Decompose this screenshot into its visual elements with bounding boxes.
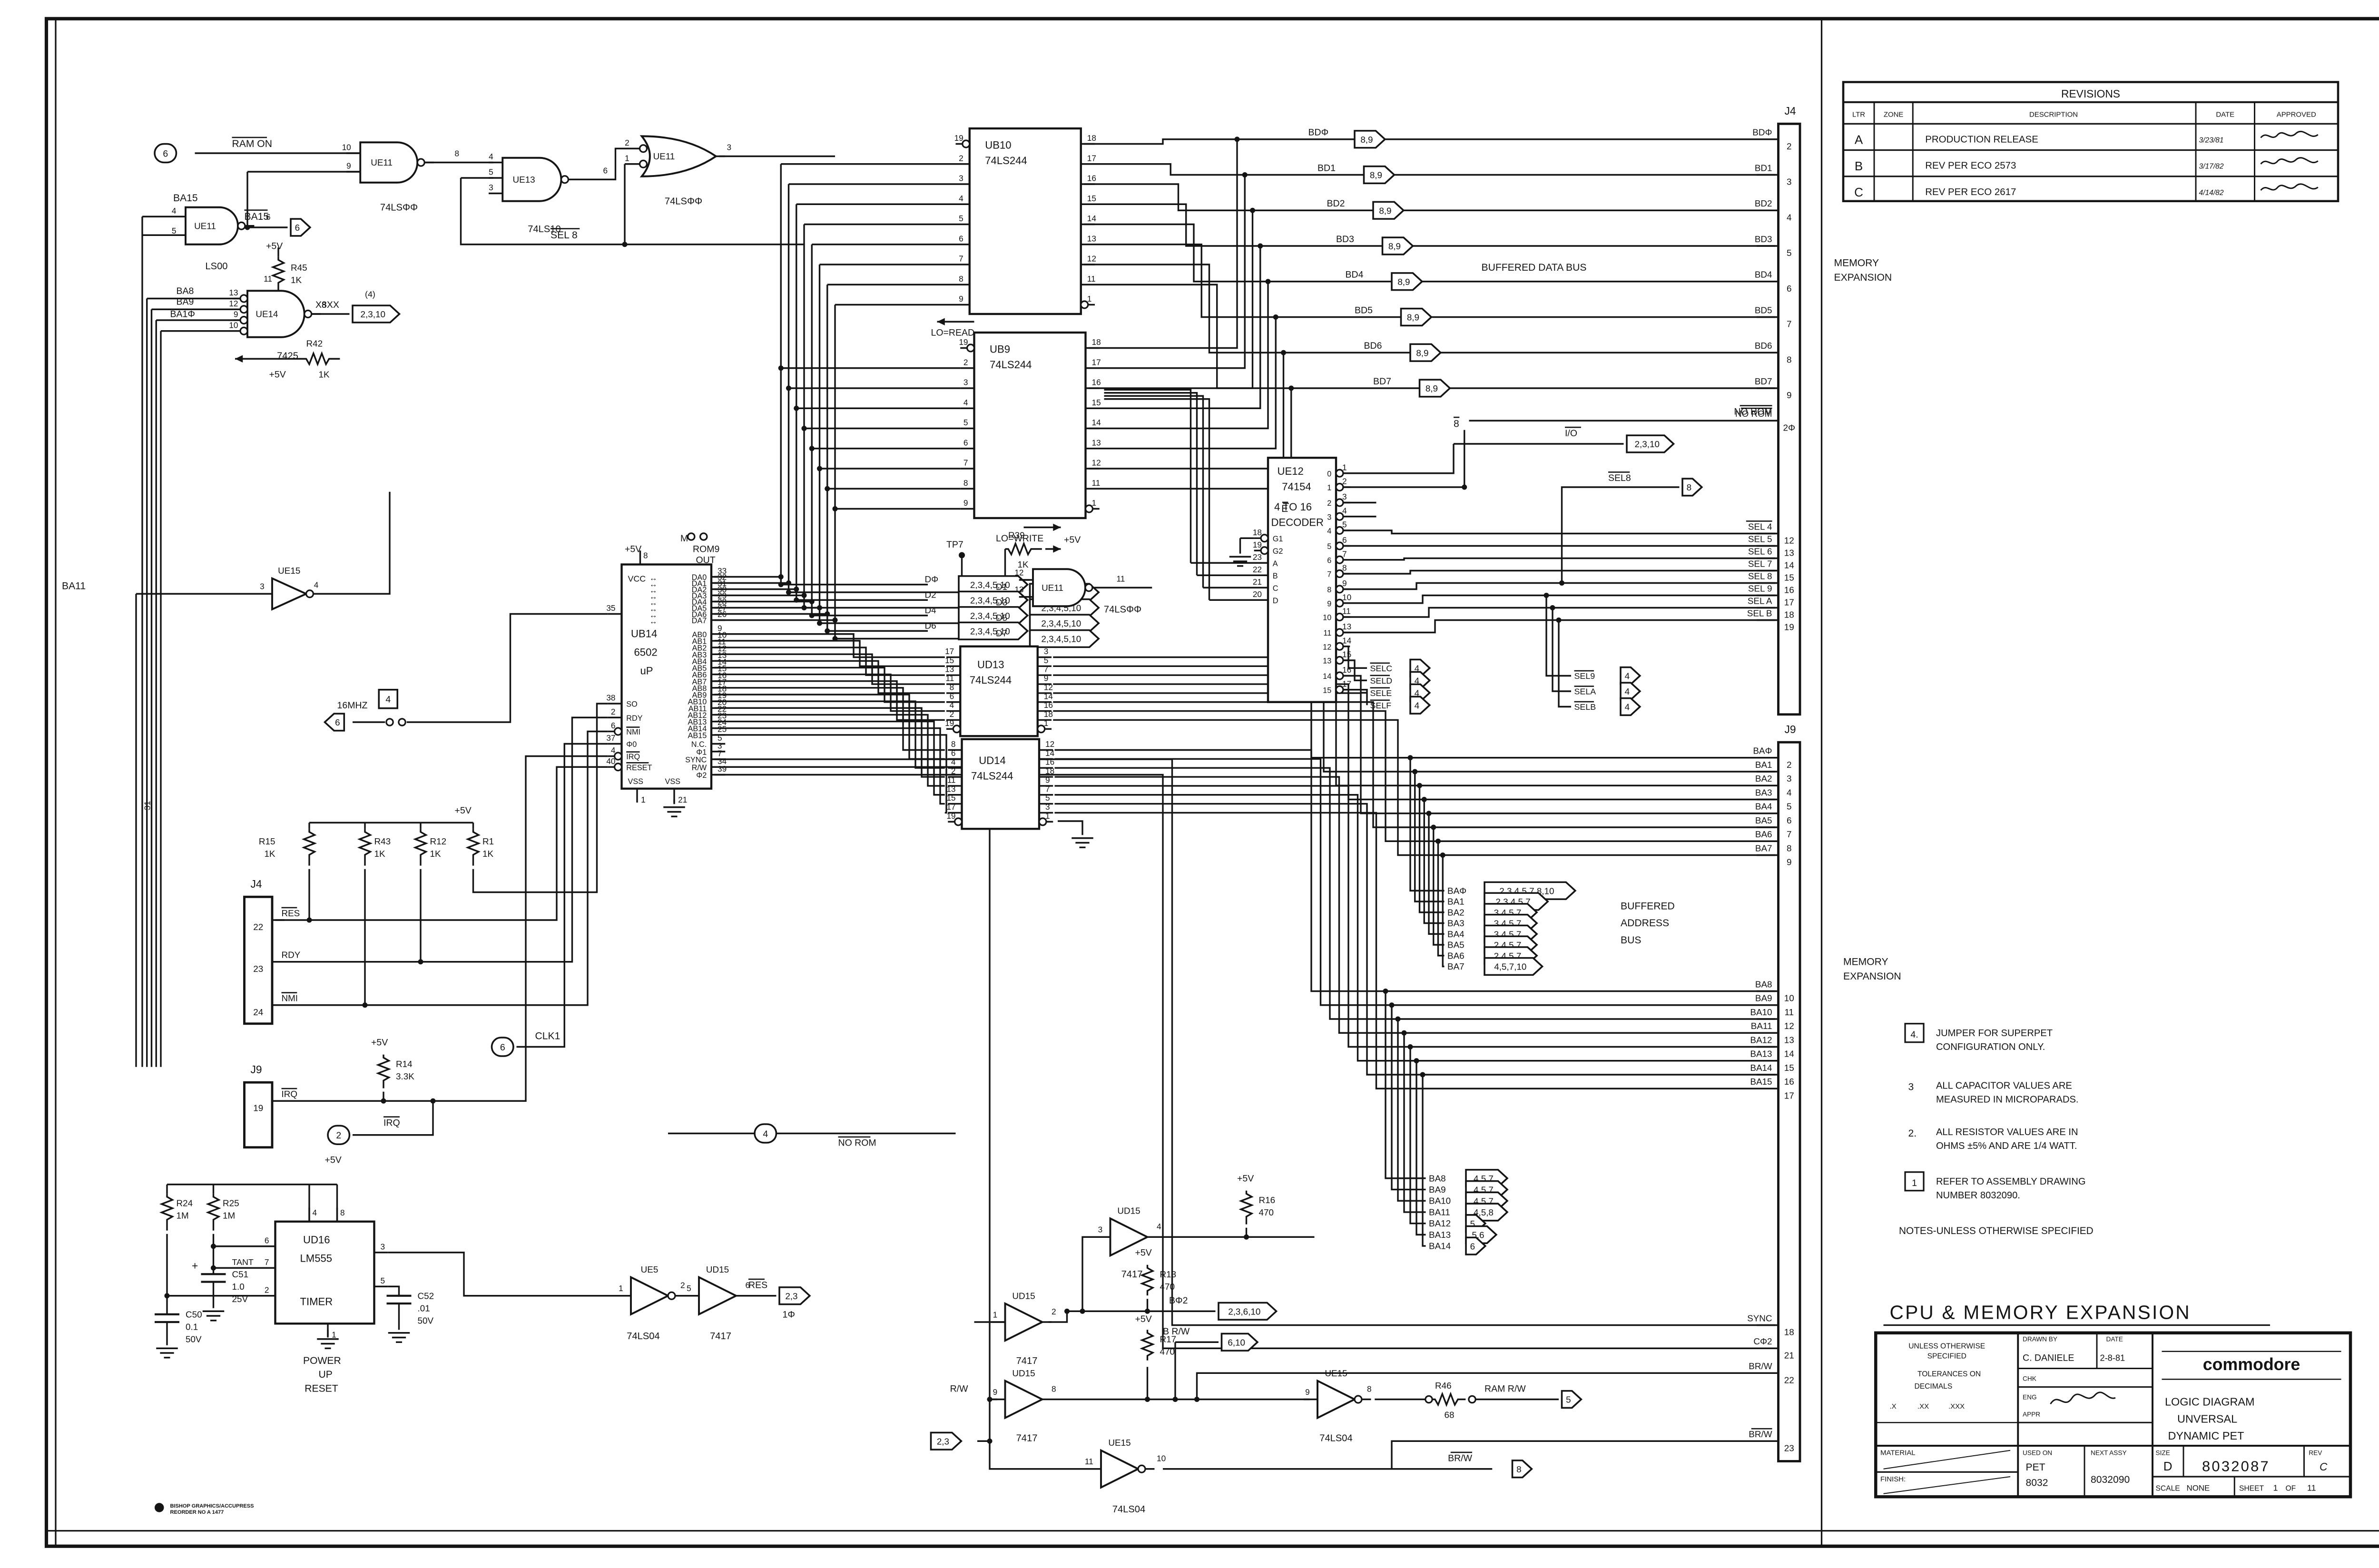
- svg-text:14: 14: [1045, 748, 1055, 758]
- svg-text:3: 3: [727, 143, 732, 152]
- svg-text:X8XX: X8XX: [315, 300, 339, 310]
- svg-text:8,9: 8,9: [1370, 170, 1382, 180]
- svg-text:UE15: UE15: [278, 566, 300, 576]
- svg-text:UE11: UE11: [1042, 583, 1063, 593]
- svg-text:+5V: +5V: [625, 544, 641, 555]
- svg-text:3: 3: [1342, 492, 1347, 501]
- svg-text:Φ2: Φ2: [696, 771, 707, 780]
- svg-text:16: 16: [1044, 700, 1053, 710]
- svg-text:UD15: UD15: [706, 1264, 729, 1274]
- svg-text:UE11: UE11: [194, 221, 216, 231]
- svg-text:B: B: [1855, 159, 1863, 173]
- svg-text:14: 14: [1784, 560, 1794, 570]
- svg-text:14: 14: [1784, 1049, 1794, 1059]
- svg-text:DECIMALS: DECIMALS: [1915, 1382, 1953, 1391]
- svg-text:17: 17: [1784, 1090, 1794, 1100]
- svg-text:2: 2: [1787, 141, 1791, 151]
- svg-text:C: C: [2320, 1460, 2328, 1473]
- svg-text:3: 3: [1045, 802, 1050, 812]
- svg-text:2-8-81: 2-8-81: [2100, 1353, 2125, 1362]
- svg-text:NMI: NMI: [626, 728, 640, 736]
- svg-text:BA13: BA13: [1429, 1230, 1451, 1240]
- svg-text:3: 3: [1787, 177, 1791, 187]
- svg-text:2: 2: [336, 1130, 341, 1141]
- gate-ue15: UE1574LS0498: [1304, 1368, 1372, 1444]
- svg-text:1: 1: [332, 1330, 336, 1340]
- svg-text:R15: R15: [259, 836, 275, 846]
- svg-text:LOGIC DIAGRAM: LOGIC DIAGRAM: [2165, 1396, 2254, 1408]
- svg-text:25V: 25V: [232, 1294, 248, 1304]
- svg-text:DRAWN BY: DRAWN BY: [2023, 1336, 2057, 1343]
- svg-text:15: 15: [1784, 573, 1794, 583]
- svg-text:13: 13: [1014, 585, 1023, 594]
- svg-text:5: 5: [1045, 793, 1050, 803]
- svg-text:21: 21: [1784, 1350, 1794, 1360]
- svg-text:10: 10: [1342, 592, 1351, 602]
- svg-text:UE13: UE13: [513, 175, 535, 185]
- svg-text:BA10: BA10: [1429, 1196, 1451, 1206]
- svg-text:BA15: BA15: [1750, 1077, 1772, 1087]
- svg-text:7: 7: [1787, 829, 1791, 839]
- svg-text:74154: 74154: [1282, 481, 1311, 493]
- svg-text:3/17/82: 3/17/82: [2199, 163, 2224, 171]
- svg-text:10: 10: [342, 143, 351, 152]
- svg-text:11: 11: [1092, 478, 1101, 488]
- wires: [136, 148, 1775, 1469]
- svg-text:UD14: UD14: [979, 755, 1006, 766]
- svg-text:6: 6: [963, 438, 968, 447]
- svg-text:.01: .01: [418, 1303, 430, 1313]
- svg-text:LTR: LTR: [1852, 111, 1865, 119]
- svg-text:1K: 1K: [319, 369, 330, 379]
- svg-text:2: 2: [963, 357, 968, 367]
- svg-text:21: 21: [1253, 577, 1262, 587]
- svg-text:B: B: [1273, 572, 1278, 580]
- svg-text:13: 13: [229, 288, 238, 297]
- svg-text:NO ROM: NO ROM: [1734, 406, 1772, 417]
- svg-text:13: 13: [1087, 234, 1096, 243]
- svg-text:14: 14: [1044, 691, 1053, 701]
- svg-text:SELC: SELC: [1370, 664, 1393, 673]
- svg-text:6: 6: [335, 717, 340, 727]
- svg-text:2,3: 2,3: [785, 1291, 797, 1301]
- svg-text:NOTES-UNLESS OTHERWISE SPECIFI: NOTES-UNLESS OTHERWISE SPECIFIED: [1899, 1225, 2094, 1236]
- schematic-page: 31BISHOP GRAPHICS/ACCUPRESSREORDER NO A …: [0, 0, 2379, 1568]
- svg-text:4: 4: [1787, 212, 1791, 222]
- svg-text:1M: 1M: [223, 1210, 235, 1220]
- svg-text:SEL 4: SEL 4: [1748, 521, 1772, 531]
- svg-text:1: 1: [625, 153, 629, 163]
- svg-text:UE5: UE5: [641, 1264, 659, 1274]
- svg-text:8032090: 8032090: [2091, 1474, 2130, 1485]
- svg-text:UB10: UB10: [985, 139, 1011, 151]
- chip-ud13: UD1374LS244171513118642193579121416181: [945, 647, 1053, 736]
- svg-text:5: 5: [963, 418, 968, 427]
- svg-text:BA5: BA5: [1755, 815, 1772, 825]
- svg-text:TP7: TP7: [946, 539, 963, 550]
- svg-text:D1: D1: [996, 582, 1007, 592]
- svg-text:18: 18: [1092, 337, 1101, 347]
- svg-text:18: 18: [1784, 1327, 1794, 1337]
- svg-text:18: 18: [1253, 528, 1262, 537]
- svg-text:ZONE: ZONE: [1884, 111, 1904, 119]
- svg-text:22: 22: [253, 922, 263, 932]
- svg-text:REV PER ECO 2573: REV PER ECO 2573: [1925, 160, 2016, 171]
- gate-ud15: UD15741798: [991, 1368, 1056, 1444]
- svg-text:BR/W: BR/W: [1749, 1361, 1772, 1371]
- svg-text:BD2: BD2: [1755, 198, 1772, 208]
- svg-text:13: 13: [1092, 438, 1101, 447]
- svg-text:1K: 1K: [374, 849, 385, 859]
- svg-text:NEXT ASSY: NEXT ASSY: [2091, 1450, 2127, 1457]
- svg-text:5: 5: [959, 214, 963, 223]
- svg-text:1: 1: [1092, 498, 1097, 508]
- svg-text:16: 16: [1342, 665, 1351, 675]
- svg-text:2: 2: [265, 1285, 269, 1294]
- svg-text:(4): (4): [365, 289, 375, 299]
- svg-text:ADDRESS: ADDRESS: [1621, 918, 1669, 929]
- svg-text:BA10: BA10: [1750, 1007, 1772, 1017]
- svg-text:BA11: BA11: [1751, 1021, 1772, 1031]
- svg-text:SYNC: SYNC: [1747, 1313, 1772, 1323]
- svg-text:19: 19: [253, 1103, 263, 1113]
- svg-text:5: 5: [381, 1276, 385, 1285]
- svg-text:6: 6: [163, 148, 168, 159]
- svg-text:16: 16: [1045, 757, 1054, 767]
- svg-text:BAΦ: BAΦ: [1447, 886, 1466, 896]
- svg-text:15: 15: [945, 656, 954, 665]
- svg-text:4: 4: [489, 152, 493, 161]
- svg-text:1: 1: [993, 1310, 998, 1319]
- svg-text:BA9: BA9: [1429, 1185, 1446, 1195]
- svg-text:5: 5: [172, 226, 177, 235]
- svg-text:BA13: BA13: [1750, 1049, 1772, 1059]
- svg-text:DYNAMIC PET: DYNAMIC PET: [2168, 1430, 2244, 1442]
- svg-text:1: 1: [2273, 1483, 2278, 1492]
- svg-text:UD15: UD15: [1117, 1206, 1140, 1216]
- connector-j9-l: J9IRQ19: [245, 1063, 298, 1147]
- svg-text:26: 26: [718, 609, 727, 619]
- svg-text:23: 23: [1784, 1443, 1794, 1453]
- svg-text:+5V: +5V: [455, 805, 472, 816]
- svg-text:DA7: DA7: [692, 617, 707, 625]
- svg-text:R25: R25: [223, 1198, 239, 1208]
- svg-text:6: 6: [951, 748, 956, 758]
- svg-text:+5V: +5V: [266, 241, 283, 252]
- svg-text:11: 11: [1784, 1007, 1794, 1017]
- svg-text:commodore: commodore: [2203, 1355, 2300, 1374]
- svg-text:SEL 9: SEL 9: [1748, 583, 1772, 593]
- svg-text:TOLERANCES ON: TOLERANCES ON: [1917, 1370, 1981, 1378]
- svg-text:4: 4: [313, 1208, 317, 1217]
- svg-text:74LSΦΦ: 74LSΦΦ: [665, 196, 702, 206]
- svg-text:1: 1: [1342, 462, 1347, 472]
- svg-text:74LS244: 74LS244: [971, 770, 1013, 782]
- svg-text:BD7: BD7: [1755, 376, 1772, 386]
- svg-text:R24: R24: [177, 1198, 193, 1208]
- svg-text:BA15: BA15: [245, 211, 269, 222]
- svg-text:ALL RESISTOR VALUES ARE IN: ALL RESISTOR VALUES ARE IN: [1936, 1127, 2078, 1137]
- svg-text:7: 7: [265, 1257, 269, 1267]
- svg-text:4: 4: [1415, 700, 1419, 710]
- svg-text:J9: J9: [251, 1063, 262, 1076]
- chip-ub9: UB974LS244192345678918171615141312111: [959, 333, 1101, 518]
- svg-text:39: 39: [718, 764, 727, 774]
- svg-text:BD4: BD4: [1755, 270, 1772, 280]
- svg-text:6: 6: [1470, 1241, 1475, 1251]
- svg-text:12: 12: [229, 299, 238, 308]
- svg-text:15: 15: [1092, 398, 1101, 407]
- notes: 4.JUMPER FOR SUPERPETCONFIGURATION ONLY.…: [1899, 1024, 2094, 1236]
- svg-text:35: 35: [606, 603, 615, 613]
- svg-text:17: 17: [1784, 598, 1794, 608]
- svg-text:9: 9: [1045, 775, 1050, 784]
- svg-text:RES: RES: [282, 908, 300, 918]
- svg-text:↔: ↔: [649, 617, 657, 626]
- svg-text:2,3,4,5,10: 2,3,4,5,10: [1041, 618, 1081, 628]
- svg-text:12: 12: [1784, 536, 1794, 546]
- svg-text:+5V: +5V: [1135, 1314, 1152, 1324]
- svg-text:UD15: UD15: [1012, 1291, 1035, 1301]
- svg-text:2,3,10: 2,3,10: [1635, 439, 1660, 449]
- svg-text:SEL 8: SEL 8: [1748, 571, 1772, 581]
- svg-text:SELD: SELD: [1370, 676, 1393, 686]
- svg-text:R14: R14: [396, 1059, 413, 1069]
- svg-text:6: 6: [1787, 284, 1791, 294]
- chip-ud16: UD16LM555TIMER67248351: [261, 1208, 388, 1340]
- svg-text:1K: 1K: [482, 849, 493, 859]
- svg-text:15: 15: [1784, 1063, 1794, 1073]
- svg-text:19: 19: [1784, 622, 1794, 632]
- svg-text:5: 5: [1044, 656, 1049, 665]
- svg-text:4/14/82: 4/14/82: [2199, 189, 2224, 197]
- svg-text:6: 6: [611, 721, 616, 730]
- svg-text:11: 11: [1323, 629, 1331, 637]
- svg-text:5: 5: [1566, 1395, 1571, 1405]
- svg-text:BA9: BA9: [177, 297, 194, 307]
- svg-text:BA4: BA4: [1755, 802, 1772, 812]
- svg-text:BD3: BD3: [1755, 234, 1772, 244]
- svg-text:+5V: +5V: [269, 369, 286, 380]
- svg-text:1: 1: [1327, 484, 1331, 492]
- svg-text:14: 14: [1323, 672, 1331, 681]
- svg-text:12: 12: [1092, 458, 1101, 468]
- svg-text:SEL 7: SEL 7: [1748, 559, 1772, 568]
- svg-text:DECODER: DECODER: [1271, 516, 1324, 528]
- svg-text:13: 13: [945, 665, 954, 674]
- svg-text:5: 5: [1327, 542, 1331, 551]
- svg-text:9: 9: [1787, 857, 1791, 867]
- svg-text:8: 8: [1367, 1384, 1372, 1393]
- svg-text:BA12: BA12: [1429, 1218, 1451, 1228]
- svg-text:ALL CAPACITOR VALUES ARE: ALL CAPACITOR VALUES ARE: [1936, 1080, 2072, 1091]
- svg-text:7425: 7425: [277, 351, 298, 361]
- svg-text:14: 14: [1342, 636, 1352, 645]
- svg-text:LS00: LS00: [205, 261, 227, 272]
- svg-text:3: 3: [963, 378, 968, 387]
- svg-text:1K: 1K: [264, 849, 275, 859]
- svg-text:2: 2: [950, 709, 954, 719]
- svg-text:19: 19: [959, 337, 968, 347]
- svg-text:12: 12: [1323, 643, 1331, 651]
- gate-ue11: UE1174LSΦΦ213: [625, 136, 731, 206]
- svg-text:4: 4: [385, 695, 391, 705]
- svg-text:VSS: VSS: [665, 777, 681, 786]
- svg-text:R1: R1: [482, 836, 494, 846]
- svg-text:5: 5: [687, 1284, 691, 1293]
- svg-text:24: 24: [253, 1007, 263, 1017]
- svg-text:FINISH:: FINISH:: [1880, 1475, 1906, 1483]
- svg-text:4: 4: [959, 194, 963, 203]
- svg-text:12: 12: [1045, 739, 1054, 749]
- svg-text:ENG: ENG: [2023, 1394, 2037, 1401]
- svg-text:OUT: OUT: [696, 555, 716, 565]
- svg-text:IRQ: IRQ: [626, 753, 640, 761]
- svg-text:9: 9: [959, 294, 963, 304]
- svg-text:11: 11: [1085, 1457, 1093, 1466]
- svg-text:1: 1: [1045, 811, 1050, 821]
- svg-text:4: 4: [1327, 527, 1331, 536]
- svg-text:18: 18: [1087, 133, 1096, 143]
- svg-text:9: 9: [993, 1387, 998, 1397]
- svg-text:7417: 7417: [1121, 1269, 1143, 1280]
- svg-text:3: 3: [1908, 1082, 1914, 1093]
- svg-text:SELB: SELB: [1574, 702, 1596, 712]
- svg-text:+5V: +5V: [1064, 535, 1081, 545]
- svg-text:C: C: [1273, 584, 1278, 593]
- svg-text:IRQ: IRQ: [383, 1117, 400, 1128]
- svg-text:BD4: BD4: [1346, 270, 1364, 280]
- svg-text:RAM R/W: RAM R/W: [1484, 1383, 1526, 1394]
- svg-text:BA6: BA6: [1755, 829, 1772, 839]
- svg-text:RESET: RESET: [626, 764, 652, 772]
- svg-text:BA8: BA8: [1429, 1173, 1446, 1183]
- svg-text:8032: 8032: [2026, 1478, 2048, 1489]
- svg-text:1K: 1K: [291, 275, 302, 285]
- svg-text:2: 2: [951, 766, 956, 776]
- svg-text:1: 1: [641, 795, 646, 804]
- svg-text:SEL8: SEL8: [1608, 473, 1631, 483]
- svg-text:SEL 5: SEL 5: [1748, 534, 1772, 544]
- svg-text:74LS244: 74LS244: [970, 674, 1012, 686]
- svg-text:OHMS ±5% AND ARE 1/4 WATT.: OHMS ±5% AND ARE 1/4 WATT.: [1936, 1141, 2077, 1151]
- svg-text:MEASURED IN MICROPARADS.: MEASURED IN MICROPARADS.: [1936, 1095, 2079, 1105]
- svg-text:8: 8: [1454, 418, 1459, 429]
- svg-text:3: 3: [1098, 1225, 1103, 1235]
- svg-text:8: 8: [963, 478, 968, 488]
- svg-text:PET: PET: [2026, 1462, 2045, 1473]
- svg-text:SELA: SELA: [1574, 687, 1596, 696]
- svg-text:I/O: I/O: [1565, 428, 1577, 439]
- svg-text:BA1: BA1: [1755, 760, 1772, 770]
- svg-text:SEL A: SEL A: [1748, 596, 1772, 606]
- svg-text:TANT: TANT: [232, 1257, 254, 1267]
- svg-text:23: 23: [1253, 552, 1262, 562]
- svg-text:SEL B: SEL B: [1747, 608, 1772, 618]
- svg-text:+5V: +5V: [371, 1037, 388, 1048]
- svg-text:8,9: 8,9: [1397, 277, 1410, 287]
- connector-j9-r: J9BAΦ2BA13BA24BA35BA46BA57BA68BA79BA810B…: [1747, 723, 1800, 1461]
- svg-text:2Φ: 2Φ: [1783, 422, 1795, 432]
- svg-text:APPROVED: APPROVED: [2277, 111, 2316, 119]
- svg-text:OF: OF: [2286, 1484, 2296, 1492]
- svg-text:.XXX: .XXX: [1948, 1402, 1965, 1411]
- chip-ue12: UE12741544 TO 16DECODER18G119G223A22B21C…: [1253, 458, 1352, 702]
- svg-text:RESET: RESET: [305, 1383, 338, 1394]
- svg-text:10: 10: [1157, 1454, 1166, 1463]
- svg-text:BA2: BA2: [1447, 907, 1465, 917]
- svg-text:UD15: UD15: [1012, 1368, 1035, 1378]
- svg-text:BA6: BA6: [1447, 951, 1465, 960]
- svg-text:D7: D7: [996, 628, 1007, 638]
- svg-text:7417: 7417: [1016, 1356, 1038, 1366]
- svg-text:8,9: 8,9: [1425, 383, 1438, 393]
- svg-text:9: 9: [346, 161, 351, 171]
- svg-text:8,9: 8,9: [1407, 313, 1419, 323]
- svg-text:BDΦ: BDΦ: [1308, 127, 1329, 138]
- svg-text:4: 4: [1625, 671, 1630, 681]
- svg-text:8: 8: [1787, 843, 1791, 853]
- svg-text:17: 17: [945, 647, 954, 656]
- svg-text:20: 20: [1253, 589, 1262, 599]
- svg-text:USED ON: USED ON: [2023, 1450, 2052, 1457]
- svg-text:8: 8: [1052, 1384, 1056, 1393]
- svg-text:B R/W: B R/W: [1163, 1326, 1190, 1337]
- svg-text:BD5: BD5: [1755, 305, 1772, 315]
- svg-text:6: 6: [1327, 556, 1331, 565]
- svg-text:4: 4: [1157, 1222, 1161, 1231]
- svg-text:UNVERSAL: UNVERSAL: [2177, 1412, 2237, 1425]
- svg-text:8: 8: [1516, 1464, 1521, 1474]
- svg-text:RES: RES: [748, 1280, 767, 1291]
- svg-text:15: 15: [1323, 686, 1331, 695]
- svg-text:6: 6: [265, 1235, 269, 1245]
- svg-text:7: 7: [1342, 549, 1347, 559]
- svg-text:BD7: BD7: [1373, 376, 1391, 387]
- svg-text:2: 2: [1052, 1307, 1056, 1316]
- svg-text:J4: J4: [251, 878, 262, 890]
- svg-text:DESCRIPTION: DESCRIPTION: [2029, 111, 2078, 119]
- svg-text:+5V: +5V: [325, 1155, 342, 1165]
- svg-text:CONFIGURATION ONLY.: CONFIGURATION ONLY.: [1936, 1042, 2045, 1052]
- svg-text:C: C: [1854, 185, 1863, 199]
- svg-text:AB15: AB15: [688, 731, 707, 740]
- svg-text:4: 4: [1787, 787, 1791, 797]
- svg-text:11: 11: [264, 274, 272, 284]
- svg-text:3: 3: [260, 582, 265, 591]
- svg-text:17: 17: [1342, 679, 1351, 688]
- svg-text:16: 16: [1784, 1077, 1794, 1087]
- svg-text:7: 7: [1327, 570, 1331, 579]
- svg-text:BUFFERED: BUFFERED: [1621, 901, 1675, 911]
- testpoint-tp7: [959, 552, 965, 559]
- svg-text:SELE: SELE: [1370, 688, 1392, 698]
- svg-text:11: 11: [2307, 1483, 2316, 1492]
- svg-text:R46: R46: [1435, 1381, 1452, 1391]
- svg-text:4: 4: [951, 757, 956, 767]
- svg-text:LM555: LM555: [300, 1252, 333, 1264]
- svg-text:A: A: [1855, 133, 1863, 147]
- svg-text:7417: 7417: [710, 1331, 731, 1342]
- svg-text:13: 13: [1323, 657, 1331, 666]
- svg-text:NMI: NMI: [282, 993, 298, 1003]
- svg-text:MEMORY: MEMORY: [1834, 257, 1879, 268]
- svg-text:RDY: RDY: [282, 950, 301, 960]
- svg-text:DΦ: DΦ: [925, 574, 939, 584]
- svg-text:EXPANSION: EXPANSION: [1834, 272, 1892, 283]
- svg-text:E: E: [1281, 503, 1288, 514]
- svg-text:BA1Φ: BA1Φ: [170, 309, 195, 320]
